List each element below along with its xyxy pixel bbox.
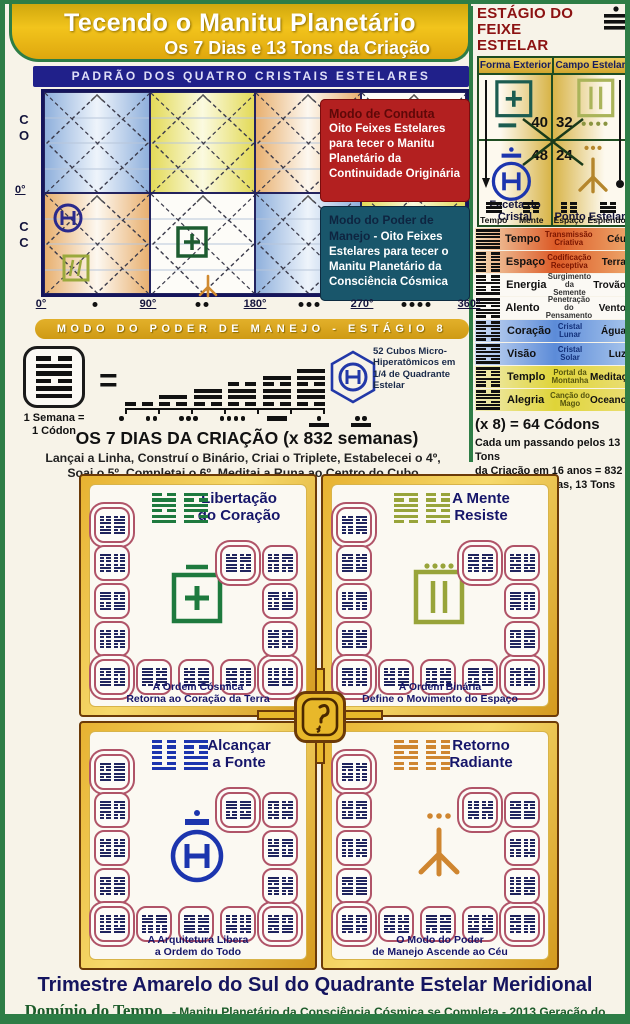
hexagram-icon — [268, 801, 279, 819]
hexagram-icon — [342, 763, 353, 781]
hexagram-icon — [184, 915, 195, 933]
hexagram-icon — [510, 630, 521, 648]
hexagram-icon — [440, 915, 451, 933]
codon-tile — [262, 792, 298, 828]
poster: Tecendo o Manitu Planetário Os 7 Dias e … — [0, 0, 630, 1024]
hexagram-icon — [356, 839, 367, 857]
hexagram-icon — [100, 801, 111, 819]
codon-tile — [262, 621, 298, 657]
hexagram-icon — [114, 554, 125, 572]
hexagram-icon — [100, 516, 111, 534]
codon-pair-icon — [394, 493, 450, 523]
hexagram-icon — [226, 554, 237, 572]
hexagram-icon — [426, 493, 450, 523]
hexagram-icon — [100, 554, 111, 572]
hexagram-icon — [524, 554, 535, 572]
codon-tile — [94, 830, 130, 866]
dominio-do-tempo: Domínio do Tempo — [25, 1001, 163, 1020]
hexagram-icon — [114, 801, 125, 819]
codon-tile — [504, 830, 540, 866]
hexagram-icon — [524, 839, 535, 857]
codon-tile — [504, 583, 540, 619]
hexagram-icon — [356, 877, 367, 895]
hexagram-icon — [282, 630, 293, 648]
quadrant-se: RetornoRadianteO Modo do Poderde Manejo … — [321, 721, 559, 970]
quadrant-caption: A Arquitetura Liberaa Ordem do Todo — [90, 934, 306, 958]
hexagram-icon — [524, 915, 535, 933]
codon-tile — [262, 830, 298, 866]
hexagram-icon — [342, 630, 353, 648]
hexagram-icon — [114, 877, 125, 895]
hexagram-icon — [510, 592, 521, 610]
hexagram-icon — [426, 740, 450, 770]
quadrant-caption: O Modo do Poderde Manejo Ascende ao Céu — [332, 934, 548, 958]
hexagram-icon — [198, 915, 209, 933]
hexagram-icon — [510, 839, 521, 857]
hexagram-icon — [268, 592, 279, 610]
hexagram-icon — [152, 740, 176, 770]
codon-tile — [94, 507, 130, 543]
hexagram-icon — [394, 740, 418, 770]
hexagram-icon — [100, 877, 111, 895]
hexagram-icon — [240, 915, 251, 933]
codon-tile — [94, 621, 130, 657]
codon-tile — [94, 754, 130, 790]
codon-tile — [336, 868, 372, 904]
hexagram-icon — [226, 915, 237, 933]
quadrant-inner: A MenteResisteA Ordem BináriaDefine o Mo… — [331, 484, 549, 707]
hexagram-icon — [356, 554, 367, 572]
hexagram-icon — [356, 801, 367, 819]
codon-pair-icon — [152, 740, 208, 770]
hexagram-icon — [268, 915, 279, 933]
hexagram-icon — [268, 877, 279, 895]
quadrant-section: Libertaçãodo CoraçãoA Ordem CósmicaRetor… — [5, 4, 625, 1014]
hexagram-icon — [282, 592, 293, 610]
codon-tile — [504, 868, 540, 904]
hexagram-icon — [524, 877, 535, 895]
hexagram-icon — [226, 801, 237, 819]
hexagram-icon — [356, 915, 367, 933]
hexagram-icon — [184, 493, 208, 523]
hexagram-icon — [356, 516, 367, 534]
hexagram-icon — [342, 877, 353, 895]
codon-tile — [94, 792, 130, 828]
quadrant-inner: Alcançara FonteA Arquitetura Liberaa Ord… — [89, 731, 307, 960]
footer-title: Trimestre Amarelo do Sul do Quadrante Es… — [5, 974, 625, 997]
hexagram-icon — [342, 516, 353, 534]
quadrant-inner: Libertaçãodo CoraçãoA Ordem CósmicaRetor… — [89, 484, 307, 707]
codon-pair-icon — [394, 740, 450, 770]
hexagram-icon — [100, 763, 111, 781]
hexagram-icon — [356, 630, 367, 648]
codon-tile — [262, 583, 298, 619]
codon-tile — [336, 621, 372, 657]
hexagram-icon — [398, 915, 409, 933]
codon-tile — [462, 545, 498, 581]
codon-tile — [220, 545, 256, 581]
hexagram-icon — [482, 554, 493, 572]
codon-tile — [336, 545, 372, 581]
hexagram-icon — [482, 915, 493, 933]
hexagram-icon — [240, 554, 251, 572]
hexagram-icon — [152, 493, 176, 523]
hexagram-icon — [100, 839, 111, 857]
hexagram-icon — [114, 915, 125, 933]
codon-tile — [94, 583, 130, 619]
hexagram-icon — [240, 801, 251, 819]
quadrant-ne: A MenteResisteA Ordem BináriaDefine o Mo… — [321, 474, 559, 717]
hexagram-icon — [510, 801, 521, 819]
hexagram-icon — [356, 592, 367, 610]
hexagram-icon — [510, 915, 521, 933]
hexagram-icon — [282, 554, 293, 572]
hexagram-icon — [342, 592, 353, 610]
hexagram-icon — [342, 554, 353, 572]
hexagram-icon — [394, 493, 418, 523]
hexagram-icon — [510, 877, 521, 895]
quadrant-sw: Alcançara FonteA Arquitetura Liberaa Ord… — [79, 721, 317, 970]
codon-pair-icon — [152, 493, 208, 523]
codon-tile — [504, 621, 540, 657]
hexagram-icon — [468, 915, 479, 933]
codon-tile — [336, 792, 372, 828]
hexagram-icon — [524, 801, 535, 819]
hexagram-icon — [524, 630, 535, 648]
codon-tile — [94, 545, 130, 581]
codon-tile — [262, 545, 298, 581]
hexagram-icon — [268, 839, 279, 857]
codon-tile — [336, 507, 372, 543]
hexagram-icon — [184, 740, 208, 770]
hexagram-icon — [268, 554, 279, 572]
question-seal-icon — [300, 697, 340, 737]
hexagram-icon — [468, 801, 479, 819]
hexagram-icon — [342, 839, 353, 857]
codon-tile — [504, 792, 540, 828]
hexagram-icon — [468, 554, 479, 572]
hexagram-icon — [114, 516, 125, 534]
hexagram-icon — [156, 915, 167, 933]
center-seal — [294, 691, 346, 743]
hexagram-icon — [524, 592, 535, 610]
quadrant-nw: Libertaçãodo CoraçãoA Ordem CósmicaRetor… — [79, 474, 317, 717]
hexagram-icon — [510, 554, 521, 572]
quadrant-inner: RetornoRadianteO Modo do Poderde Manejo … — [331, 731, 549, 960]
hexagram-icon — [100, 592, 111, 610]
codon-tile — [336, 830, 372, 866]
hexagram-icon — [100, 915, 111, 933]
hexagram-icon — [282, 839, 293, 857]
codon-tile — [462, 792, 498, 828]
hexagram-icon — [426, 915, 437, 933]
codon-tile — [262, 868, 298, 904]
quadrant-caption: A Ordem CósmicaRetorna ao Coração da Ter… — [90, 681, 306, 705]
hexagram-icon — [282, 915, 293, 933]
footer-line: Domínio do Tempo - Manitu Planetário da … — [5, 1001, 625, 1024]
hexagram-icon — [282, 877, 293, 895]
hexagram-icon — [356, 763, 367, 781]
hexagram-icon — [114, 763, 125, 781]
hexagram-icon — [342, 801, 353, 819]
hexagram-icon — [114, 839, 125, 857]
codon-tile — [336, 754, 372, 790]
hexagram-icon — [268, 630, 279, 648]
hexagram-icon — [282, 801, 293, 819]
hexagram-icon — [100, 630, 111, 648]
codon-tile — [336, 583, 372, 619]
codon-tile — [504, 545, 540, 581]
hexagram-icon — [114, 592, 125, 610]
footer-tagline: - Manitu Planetário da Consciência Cósmi… — [172, 1005, 605, 1024]
hexagram-icon — [384, 915, 395, 933]
codon-tile — [94, 868, 130, 904]
codon-tile — [220, 792, 256, 828]
hexagram-icon — [342, 915, 353, 933]
hexagram-icon — [142, 915, 153, 933]
hexagram-icon — [482, 801, 493, 819]
hexagram-icon — [114, 630, 125, 648]
quadrant-caption: A Ordem BináriaDefine o Movimento do Esp… — [332, 681, 548, 705]
